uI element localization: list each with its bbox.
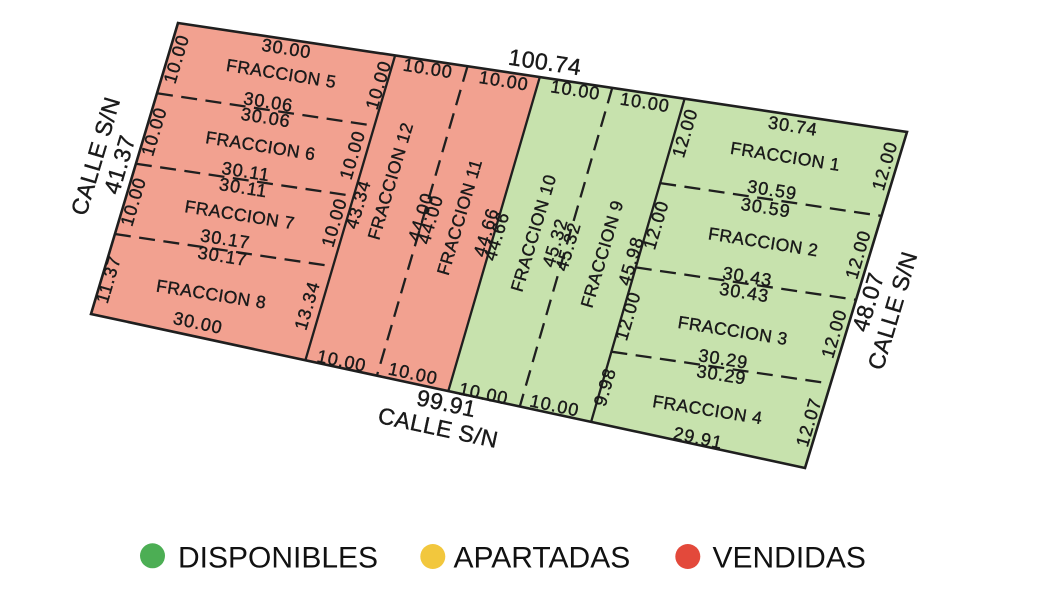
svg-text:APARTADAS: APARTADAS [454, 542, 631, 575]
svg-text:VENDIDAS: VENDIDAS [713, 542, 866, 575]
svg-text:DISPONIBLES: DISPONIBLES [178, 542, 378, 575]
